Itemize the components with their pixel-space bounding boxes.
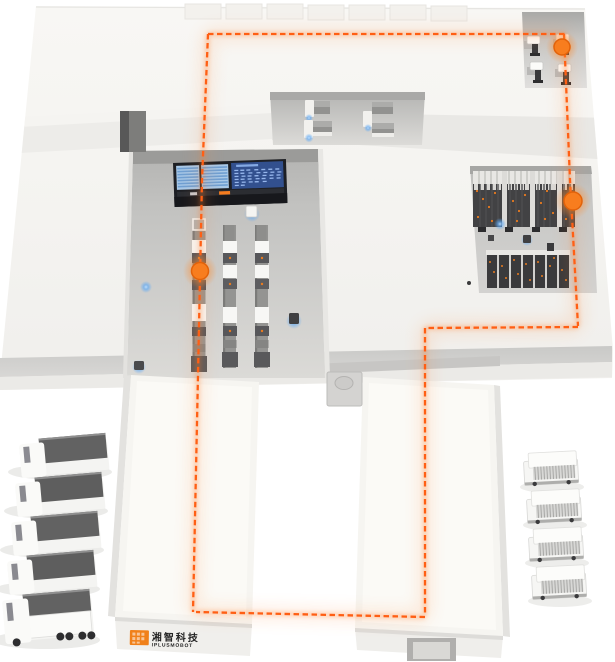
svg-text:IPLUSMOBOT: IPLUSMOBOT	[152, 642, 193, 649]
